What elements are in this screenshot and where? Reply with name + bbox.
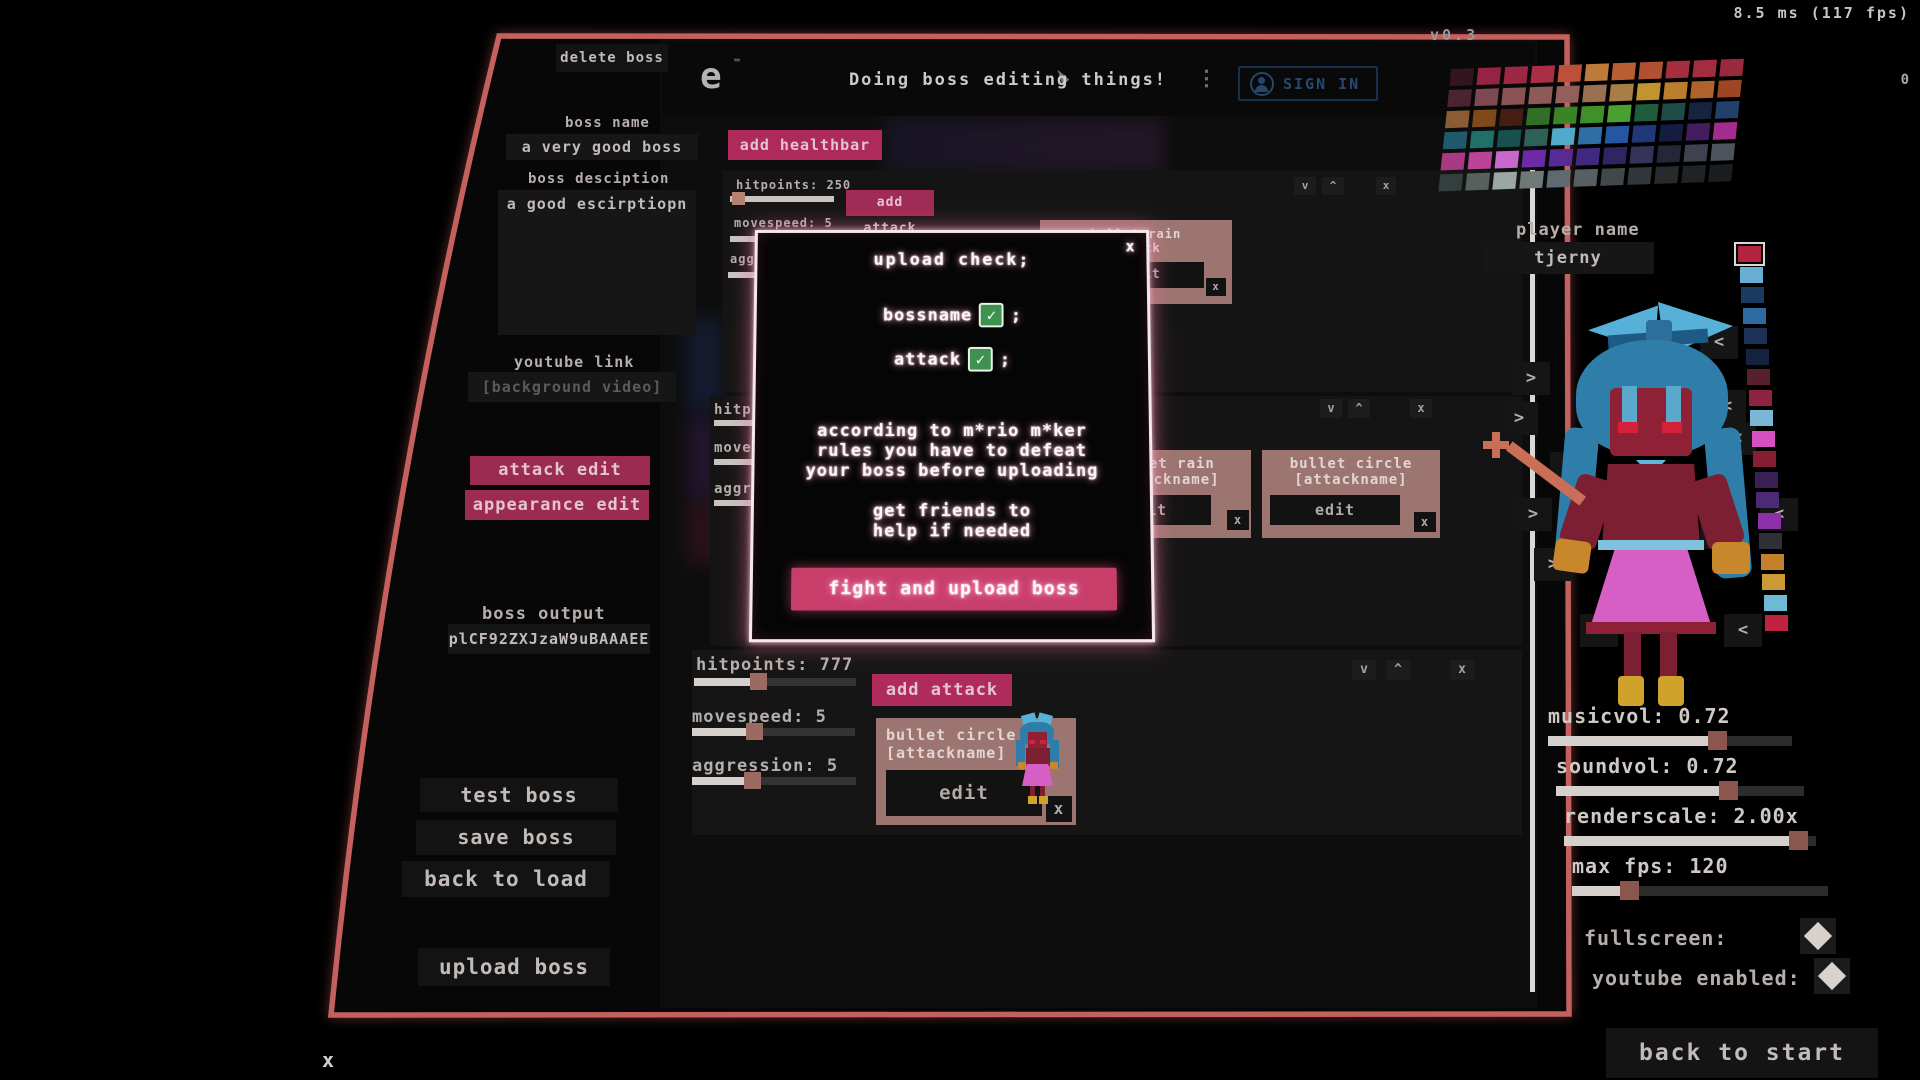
palette-color-swatch[interactable] — [1497, 130, 1522, 148]
slider-handle[interactable] — [732, 192, 745, 205]
palette-color-swatch[interactable] — [1449, 68, 1474, 86]
save-boss-button[interactable]: save boss — [416, 820, 616, 855]
attack-delete-button[interactable]: x — [1414, 512, 1436, 532]
site-logo-fragment: e — [700, 56, 722, 97]
close-panel-button[interactable]: x — [1410, 399, 1432, 418]
slider-fill — [1548, 736, 1714, 746]
sign-in-label: SIGN IN — [1283, 75, 1360, 93]
hitpoints-slider[interactable] — [694, 678, 856, 686]
mini-boss-sprite — [1014, 714, 1062, 810]
player-name-input[interactable]: tjerny — [1482, 242, 1654, 274]
boss-description-input[interactable]: a good escirptiopn — [498, 190, 696, 335]
color-swatch[interactable] — [1764, 595, 1787, 611]
hitpoints-slider[interactable] — [730, 196, 834, 202]
palette-color-swatch[interactable] — [1522, 150, 1547, 168]
wand-icon — [1483, 441, 1509, 449]
color-swatch[interactable] — [1740, 267, 1763, 283]
color-swatch[interactable] — [1765, 615, 1788, 631]
aggression-label: aggression: 5 — [692, 756, 838, 776]
attack-card: bullet circle [attackname] edit x — [1262, 450, 1440, 538]
palette-color-swatch[interactable] — [1575, 148, 1600, 166]
diamond-icon — [1804, 922, 1832, 950]
selected-color-swatch[interactable] — [1738, 246, 1761, 262]
palette-color-swatch[interactable] — [1715, 101, 1740, 119]
palette-color-swatch[interactable] — [1607, 105, 1632, 123]
palette-color-swatch[interactable] — [1602, 147, 1627, 165]
attack-name-line1: bullet circle — [1262, 450, 1440, 472]
palette-color-swatch[interactable] — [1634, 104, 1659, 122]
palette-color-swatch[interactable] — [1713, 122, 1738, 140]
boss-description-label: boss desciption — [528, 171, 669, 187]
palette-color-swatch[interactable] — [1476, 67, 1501, 85]
youtube-link-input[interactable]: [background video] — [468, 372, 676, 402]
palette-color-swatch[interactable] — [1661, 103, 1686, 121]
player-name-label: player name — [1516, 220, 1640, 240]
palette-color-swatch[interactable] — [1611, 62, 1636, 80]
palette-color-swatch[interactable] — [1656, 145, 1681, 163]
palette-color-swatch[interactable] — [1580, 106, 1605, 124]
modal-body-line: according to m*rio m*ker — [755, 421, 1149, 441]
movespeed-slider[interactable] — [692, 728, 855, 736]
attack-check-row: attack ✓ ; — [756, 347, 1148, 372]
palette-color-swatch[interactable] — [1474, 88, 1499, 106]
slider-handle[interactable] — [750, 673, 767, 690]
palette-color-swatch[interactable] — [1578, 127, 1603, 145]
palette-color-swatch[interactable] — [1600, 168, 1625, 186]
palette-color-swatch[interactable] — [1526, 107, 1551, 125]
attack-name-line2: [attackname] — [1262, 472, 1440, 488]
palette-color-swatch[interactable] — [1472, 109, 1497, 127]
maxfps-label: max fps: 120 — [1572, 854, 1729, 878]
youtube-enabled-toggle[interactable] — [1814, 958, 1850, 994]
palette-color-swatch[interactable] — [1686, 123, 1711, 141]
close-panel-button[interactable]: x — [1376, 177, 1396, 195]
palette-color-swatch[interactable] — [1441, 153, 1466, 171]
add-attack-button[interactable]: add attack — [872, 674, 1012, 706]
attack-delete-button[interactable]: x — [1206, 278, 1226, 296]
page-title: Doing boss editing things! — [768, 70, 1248, 90]
menu-dots-icon[interactable]: ⋮ — [1196, 66, 1217, 90]
movespeed-label: movespeed: 5 — [734, 216, 833, 230]
move-up-button[interactable]: ^ — [1322, 177, 1344, 195]
attack-check-label: attack — [894, 349, 961, 369]
palette-color-swatch[interactable] — [1659, 124, 1684, 142]
color-swatch[interactable] — [1762, 574, 1785, 590]
back-to-start-button[interactable]: back to start — [1606, 1028, 1878, 1078]
palette-color-swatch[interactable] — [1438, 174, 1463, 192]
slider-fill — [1556, 786, 1725, 796]
background-smudge — [884, 118, 1164, 176]
palette-color-swatch[interactable] — [1546, 170, 1571, 188]
color-swatch[interactable] — [1761, 554, 1784, 570]
palette-color-swatch[interactable] — [1557, 64, 1582, 82]
slider-handle[interactable] — [1620, 881, 1639, 900]
bossname-check-row: bossname ✓ ; — [757, 303, 1148, 327]
palette-color-swatch[interactable] — [1443, 131, 1468, 149]
youtube-enabled-label: youtube enabled: — [1592, 966, 1801, 990]
renderscale-slider[interactable] — [1564, 836, 1816, 846]
palette-color-swatch[interactable] — [1584, 63, 1609, 81]
youtube-link-label: youtube link — [514, 353, 634, 371]
palette-color-swatch[interactable] — [1555, 85, 1580, 103]
add-healthbar-button[interactable]: add healthbar — [728, 130, 882, 160]
palette-color-swatch[interactable] — [1553, 107, 1578, 125]
slider-handle[interactable] — [1708, 731, 1727, 750]
check-suffix: ; — [1011, 305, 1021, 325]
palette-color-swatch[interactable] — [1548, 149, 1573, 167]
soundvol-label: soundvol: 0.72 — [1556, 754, 1739, 778]
fight-and-upload-button[interactable]: fight and upload boss — [791, 568, 1117, 611]
move-down-button[interactable]: v — [1352, 660, 1376, 680]
hitpoints-label: hitpoints: 777 — [696, 655, 853, 675]
next-option-button[interactable]: > — [1512, 362, 1550, 395]
palette-color-swatch[interactable] — [1573, 169, 1598, 187]
palette-color-swatch[interactable] — [1530, 65, 1555, 83]
palette-color-swatch[interactable] — [1692, 60, 1717, 78]
frame-time-secondary: 0 — [1901, 72, 1910, 88]
palette-color-swatch[interactable] — [1468, 152, 1493, 170]
soundvol-slider[interactable] — [1556, 786, 1804, 796]
aggression-slider[interactable] — [692, 777, 856, 785]
modal-hint-line: help if needed — [753, 521, 1150, 541]
slider-fill — [692, 728, 752, 736]
slider-handle[interactable] — [746, 723, 763, 740]
palette-color-swatch[interactable] — [1710, 143, 1735, 161]
palette-color-swatch[interactable] — [1470, 130, 1495, 148]
healthbar-panel-3: hitpoints: 777 movespeed: 5 aggression: … — [692, 650, 1522, 835]
attack-checkbox-checked: ✓ — [968, 347, 993, 372]
palette-color-swatch[interactable] — [1636, 83, 1661, 101]
attack-edit-mode-button[interactable]: attack edit — [470, 456, 650, 485]
palette-color-swatch[interactable] — [1524, 129, 1549, 147]
appearance-edit-mode-button[interactable]: appearance edit — [465, 490, 649, 520]
palette-color-swatch[interactable] — [1501, 87, 1526, 105]
attack-edit-button[interactable]: edit — [1270, 495, 1400, 525]
move-up-button[interactable]: ^ — [1386, 660, 1410, 680]
boss-output-label: boss output — [482, 604, 606, 624]
palette-color-swatch[interactable] — [1663, 82, 1688, 100]
palette-color-swatch[interactable] — [1447, 89, 1472, 107]
sign-in-button[interactable]: SIGN IN — [1238, 66, 1378, 101]
slider-handle[interactable] — [744, 772, 761, 789]
delete-boss-button[interactable]: delete boss — [556, 44, 668, 72]
fullscreen-toggle[interactable] — [1800, 918, 1836, 954]
next-option-button[interactable]: > — [1500, 402, 1538, 435]
header-bar: e ™ Doing boss editing things! ⋮ SIGN IN — [662, 42, 1535, 116]
palette-color-swatch[interactable] — [1582, 85, 1607, 103]
palette-color-swatch[interactable] — [1681, 165, 1706, 183]
palette-color-swatch[interactable] — [1445, 110, 1470, 128]
palette-color-swatch[interactable] — [1495, 151, 1520, 169]
modal-body-line: rules you have to defeat — [755, 441, 1150, 461]
version-label: v0.3 — [1430, 26, 1478, 44]
slider-fill — [694, 678, 756, 686]
close-panel-button[interactable]: x — [1450, 660, 1474, 680]
move-up-button[interactable]: ^ — [1348, 399, 1370, 418]
bossname-checkbox-checked: ✓ — [979, 303, 1004, 327]
maxfps-slider[interactable] — [1572, 886, 1828, 896]
frame-time-readout: 8.5 ms (117 fps) — [1734, 4, 1911, 22]
check-suffix: ; — [1000, 349, 1010, 369]
musicvol-label: musicvol: 0.72 — [1548, 704, 1731, 728]
musicvol-slider[interactable] — [1548, 736, 1792, 746]
content-scrollbar[interactable] — [1530, 170, 1535, 992]
move-down-button[interactable]: v — [1320, 399, 1342, 418]
palette-color-swatch[interactable] — [1638, 62, 1663, 80]
palette-color-swatch[interactable] — [1632, 125, 1657, 143]
palette-color-swatch[interactable] — [1492, 172, 1517, 190]
palette-color-swatch[interactable] — [1519, 171, 1544, 189]
palette-color-swatch[interactable] — [1719, 59, 1744, 77]
palette-color-swatch[interactable] — [1708, 164, 1733, 182]
palette-color-swatch[interactable] — [1690, 81, 1715, 99]
slider-handle[interactable] — [1789, 831, 1808, 850]
bossname-check-label: bossname — [883, 305, 972, 325]
modal-title: upload check; — [757, 250, 1146, 269]
bottom-close-button[interactable]: x — [322, 1048, 334, 1072]
palette-color-swatch[interactable] — [1503, 66, 1528, 84]
palette-color-swatch[interactable] — [1688, 102, 1713, 120]
test-boss-button[interactable]: test boss — [420, 778, 618, 812]
renderscale-label: renderscale: 2.00x — [1564, 804, 1799, 828]
attack-delete-button[interactable]: x — [1227, 510, 1249, 530]
boss-name-label: boss name — [565, 115, 650, 131]
palette-color-swatch[interactable] — [1654, 166, 1679, 184]
move-down-button[interactable]: v — [1294, 177, 1316, 195]
modal-hint-line: get friends to — [754, 501, 1151, 521]
palette-color-swatch[interactable] — [1528, 86, 1553, 104]
upload-check-modal: x upload check; bossname ✓ ; attack ✓ ; … — [749, 230, 1155, 642]
site-logo-mark: ™ — [734, 58, 740, 69]
slider-handle[interactable] — [1719, 781, 1738, 800]
hitpoints-label: hitpoints: 250 — [736, 178, 851, 192]
palette-color-swatch[interactable] — [1605, 126, 1630, 144]
next-option-button[interactable]: > — [1514, 498, 1552, 531]
back-to-load-button[interactable]: back to load — [402, 861, 610, 897]
account-circle-icon — [1250, 72, 1274, 96]
slider-fill — [692, 777, 749, 785]
palette-color-swatch[interactable] — [1499, 108, 1524, 126]
palette-color-swatch[interactable] — [1717, 80, 1742, 98]
palette-color-swatch[interactable] — [1665, 61, 1690, 79]
add-attack-button[interactable]: add attack — [846, 190, 934, 216]
boss-output-field[interactable]: plCF92ZXJzaW9uBAAAEE — [448, 624, 650, 654]
upload-boss-button[interactable]: upload boss — [418, 948, 610, 986]
boss-name-input[interactable]: a very good boss — [506, 134, 698, 160]
modal-body-line: your boss before uploading — [754, 461, 1149, 481]
palette-color-swatch[interactable] — [1629, 146, 1654, 164]
palette-color-swatch[interactable] — [1609, 84, 1634, 102]
palette-color-swatch[interactable] — [1551, 128, 1576, 146]
player-character-sprite — [1548, 288, 1763, 713]
palette-color-swatch[interactable] — [1627, 167, 1652, 185]
palette-color-swatch[interactable] — [1465, 173, 1490, 191]
color-palette-grid — [1437, 58, 1751, 204]
fullscreen-label: fullscreen: — [1584, 926, 1727, 950]
palette-color-swatch[interactable] — [1683, 144, 1708, 162]
diamond-icon — [1818, 962, 1846, 990]
slider-fill — [1564, 836, 1796, 846]
